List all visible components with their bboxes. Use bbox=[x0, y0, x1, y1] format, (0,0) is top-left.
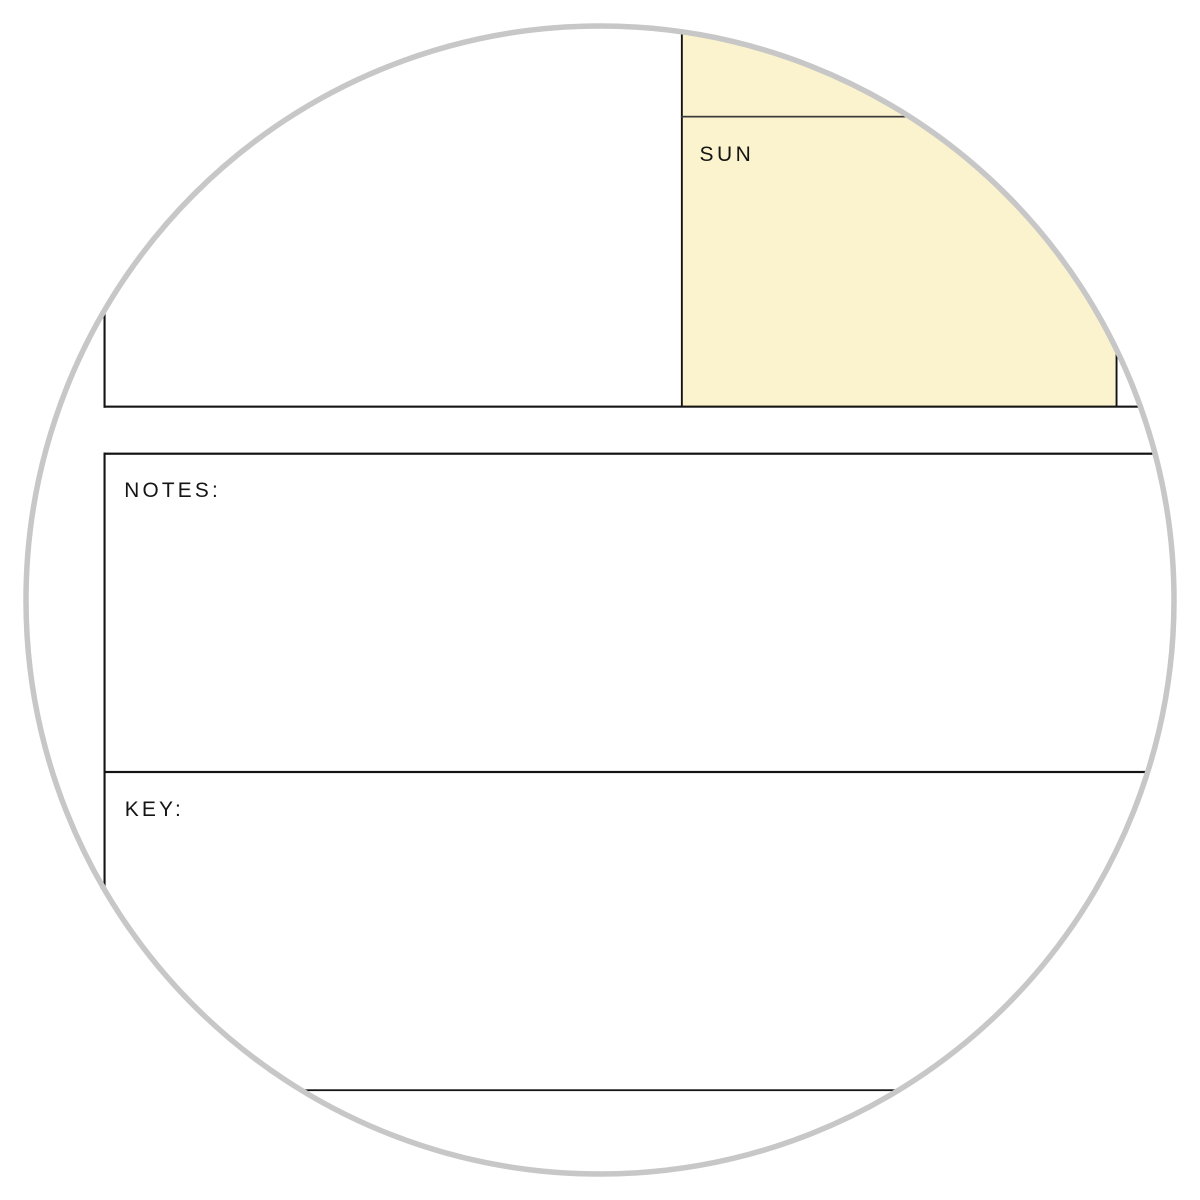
svg-text:SUN: SUN bbox=[700, 143, 755, 166]
svg-text:KEY:: KEY: bbox=[125, 798, 184, 821]
svg-text:NOTES:: NOTES: bbox=[124, 479, 221, 502]
